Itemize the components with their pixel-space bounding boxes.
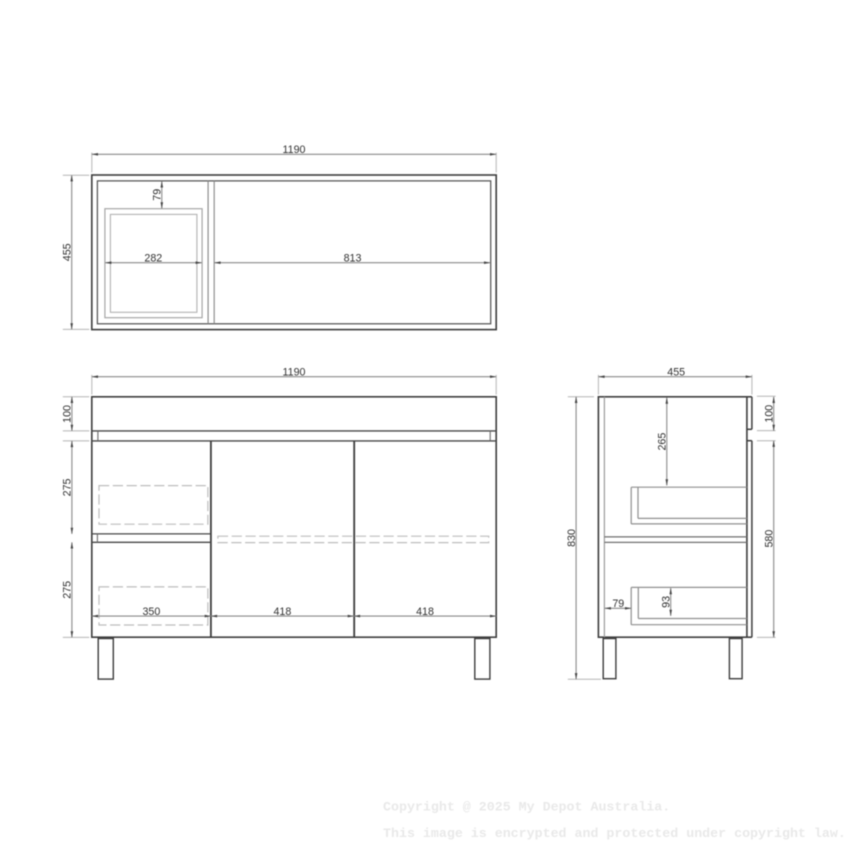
svg-text:100: 100 xyxy=(764,405,776,423)
svg-text:93: 93 xyxy=(661,596,673,608)
svg-text:282: 282 xyxy=(144,252,162,264)
svg-text:350: 350 xyxy=(142,606,160,618)
svg-text:455: 455 xyxy=(667,366,685,378)
svg-text:455: 455 xyxy=(62,243,74,261)
svg-text:This image is encrypted and pr: This image is encrypted and protected un… xyxy=(383,826,846,841)
svg-text:418: 418 xyxy=(416,606,434,618)
svg-text:79: 79 xyxy=(152,189,164,201)
svg-text:Copyright @ 2025 My Depot Aust: Copyright @ 2025 My Depot Australia. xyxy=(383,799,670,814)
svg-text:265: 265 xyxy=(657,433,669,451)
svg-text:1190: 1190 xyxy=(283,366,306,378)
svg-text:79: 79 xyxy=(612,598,624,610)
svg-text:100: 100 xyxy=(62,405,74,423)
svg-text:580: 580 xyxy=(764,530,776,548)
svg-text:830: 830 xyxy=(566,529,578,547)
svg-text:813: 813 xyxy=(344,252,362,264)
svg-text:418: 418 xyxy=(273,606,291,618)
svg-text:275: 275 xyxy=(62,478,74,496)
svg-text:275: 275 xyxy=(62,581,74,599)
svg-text:1190: 1190 xyxy=(283,144,306,156)
